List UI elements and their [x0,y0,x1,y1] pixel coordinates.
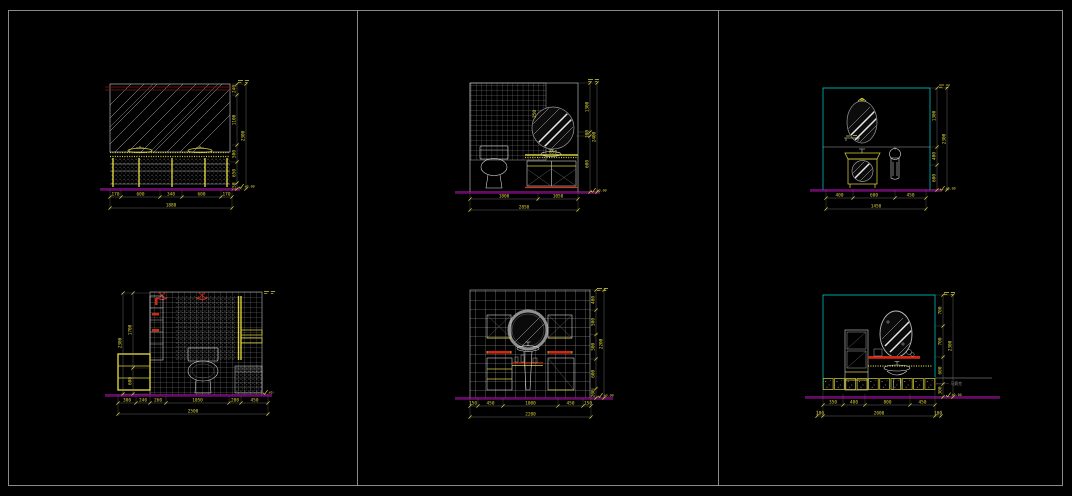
ceiling-trim-line [105,87,232,90]
ceiling-mark-icon [238,81,249,83]
ceiling-mark-icon [264,292,275,294]
dim-label: 450 [907,192,915,198]
dim-label: 600 [870,192,878,198]
dim-label: 700 [937,337,943,345]
dim-label: 2200 [525,411,536,417]
material-callout: 马赛克 [936,381,962,386]
feature-tile-panel [175,296,235,360]
dim-label: 300 [937,386,943,394]
dim-label: 1300 [584,101,590,112]
room-outline [823,295,935,390]
pedestal-sink-cabinet [845,149,880,188]
dim-label: 100 [816,410,824,416]
svg-text:±0.00: ±0.00 [604,394,614,398]
right-dimensions: 400 500 500 600 200 2200 [590,288,606,399]
accent-shelf-right [548,351,572,354]
elevation-top-middle: 250 650 1300 100 600 [450,70,610,220]
oval-mirror [847,98,879,143]
dim-label: 400 [590,296,596,304]
dim-label: 2500 [188,408,199,414]
dim-label: 1700 [127,324,133,335]
towel-ring [890,148,901,180]
dim-label: 1800 [499,193,510,199]
dim-label: 2200 [598,338,604,349]
bottom-dimensions: 150 450 1000 450 150 2200 [468,398,592,419]
svg-text:±0.00: ±0.00 [946,187,956,191]
dim-label: 200 [231,398,239,404]
dim-label: 700 [937,306,943,314]
bottom-dimensions: 400 600 450 1450 [824,190,927,211]
dim-label: 2300 [240,130,246,141]
elevation-top-left: 240 1100 500 650 150 2300 170 600 340 60… [95,70,260,220]
dim-label: 150 [584,400,592,406]
dim-label: 1100 [231,114,237,125]
dim-label: 600 [931,174,937,182]
svg-text:±0.00: ±0.00 [269,391,276,395]
ceiling-mark-icon [939,85,950,87]
side-cabinet [118,354,150,390]
dim-label: 340 [167,192,175,198]
dim-label: 600 [590,369,596,377]
dim-label: 2300 [117,337,123,348]
dim-label: 600 [584,160,590,168]
left-dimensions: 1700 600 2300 [117,291,150,395]
elevation-bottom-right: 马赛克 700 700 600 300 2300 350 400 800 450… [800,282,1005,432]
accent-shelf-left [487,351,511,354]
dim-label: 2300 [947,340,953,351]
floor-level-mark: ±0.00 [239,184,255,189]
dim-label: 400 [850,399,858,405]
dim-label: 2000 [874,410,885,416]
dim-label: 450 [251,398,259,404]
dim-label: 100 [584,130,590,138]
svg-text:马赛克: 马赛克 [951,381,963,386]
dim-label: 600 [127,377,133,385]
dim-label: 800 [884,399,892,405]
bottom-dimensions: 1800 1050 2850 [468,192,579,212]
dim-label: 150 [469,400,477,406]
bottom-dimensions: 170 600 340 600 170 1880 [108,189,233,210]
ceiling-mark-icon [588,80,599,82]
cad-sheet: 240 1100 500 650 150 2300 170 600 340 60… [0,0,1072,496]
dim-label: 400 [931,152,937,160]
svg-text:±0.00: ±0.00 [952,393,962,397]
dim-label: 600 [198,192,206,198]
right-dimensions: 240 1100 500 650 150 2300 [230,82,248,190]
dim-label: 600 [137,192,145,198]
dim-label: 250 [532,110,538,118]
right-dimensions: 1300 400 600 2300 [930,86,949,191]
dim-label: 2400 [591,131,597,142]
dim-label: 350 [829,399,837,405]
dim-label: 1050 [192,398,203,404]
bottom-dimensions: 350 400 800 450 100 2000 100 [815,390,942,418]
dim-label: 450 [567,400,575,406]
dim-label: 400 [836,192,844,198]
dim-label: 300 [123,398,131,404]
column-divider-right [718,10,719,486]
dim-label: 170 [112,192,120,198]
floor-level-mark: ±0.00 [263,390,275,395]
svg-text:±0.00: ±0.00 [245,185,255,189]
dim-label: 450 [919,399,927,405]
oval-mirror [880,311,915,357]
dim-label: 1050 [553,193,564,199]
elevation-bottom-middle: 400 500 500 600 200 2200 150 450 1000 45… [455,282,615,432]
dim-label: 100 [934,410,942,416]
dim-label: 200 [590,389,596,397]
floor-level-mark: ±0.00 [598,393,614,398]
dim-label: 240 [231,85,237,93]
svg-text:±0.00: ±0.00 [597,189,607,193]
dim-label: 2850 [519,204,530,210]
dim-label: 1880 [166,202,177,208]
dim-label: 600 [937,366,943,374]
elevation-bottom-left: 1700 600 2300 300 240 260 1050 200 450 2… [100,282,275,432]
ceiling-mark-icon [597,289,608,291]
dim-label: 500 [231,150,237,158]
dim-label: 500 [590,342,596,350]
mosaic-base [823,378,936,390]
dim-label: 1450 [871,203,882,209]
dim-label: 170 [223,192,231,198]
dim-label: 650 [231,169,237,177]
step-block [235,366,262,393]
ceiling-mark-icon [944,293,955,295]
vanity-cabinet [525,150,578,188]
elevation-top-right: 1300 400 600 2300 400 600 450 1450 ±0.00 [800,70,965,220]
right-dimensions: 1300 100 600 2400 [576,81,599,193]
dim-label: 450 [487,400,495,406]
dim-label: 2300 [941,133,947,144]
dim-label: 500 [590,318,596,326]
dim-label: 1000 [525,400,536,406]
column-divider-left [357,10,358,486]
bottom-dimensions: 300 240 260 1050 200 450 2500 [116,395,269,416]
dim-label: 1300 [931,110,937,121]
dim-label: 260 [154,398,162,404]
room-outline [823,88,930,190]
dim-label: 240 [139,398,147,404]
dim-label: 150 [231,182,237,190]
